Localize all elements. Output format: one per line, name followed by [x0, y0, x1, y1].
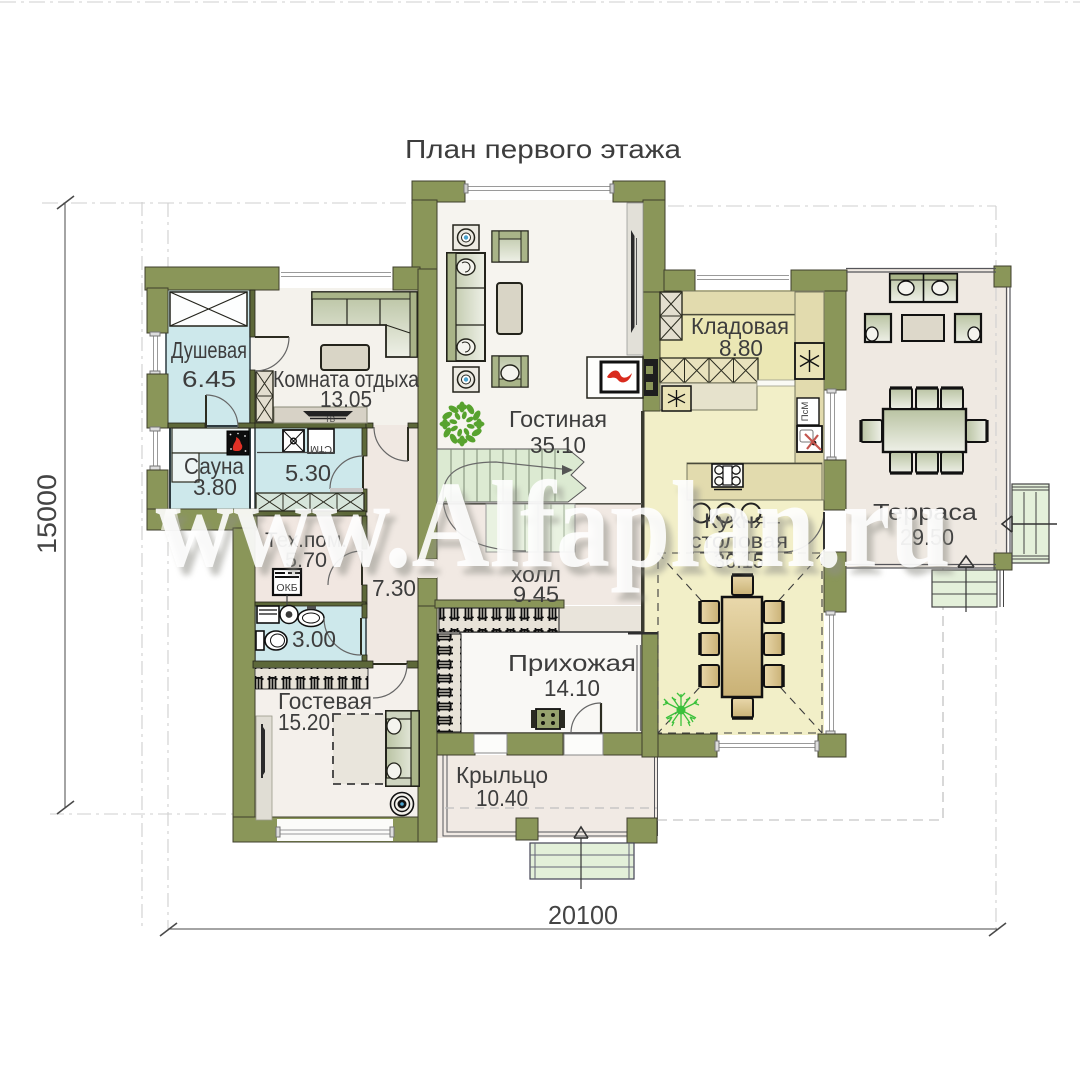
- svg-text:20100: 20100: [548, 900, 618, 930]
- svg-text:35.10: 35.10: [530, 432, 586, 458]
- svg-text:15000: 15000: [32, 474, 62, 554]
- svg-text:ПсМ: ПсМ: [800, 402, 811, 422]
- svg-text:15.20: 15.20: [278, 709, 330, 735]
- svg-text:8.80: 8.80: [719, 335, 763, 361]
- svg-text:6.45: 6.45: [182, 366, 236, 392]
- svg-text:13.05: 13.05: [320, 386, 372, 412]
- svg-text:ТВ: ТВ: [325, 415, 335, 424]
- svg-text:www.Alfaplan.ru: www.Alfaplan.ru: [156, 456, 951, 593]
- svg-text:Гостиная: Гостиная: [509, 406, 607, 432]
- svg-text:14.10: 14.10: [544, 675, 600, 701]
- svg-text:План первого этажа: План первого этажа: [405, 134, 682, 164]
- svg-text:3.00: 3.00: [292, 626, 336, 652]
- svg-text:Прихожая: Прихожая: [508, 650, 636, 676]
- svg-text:10.40: 10.40: [476, 785, 528, 811]
- svg-text:СтМ: СтМ: [310, 443, 332, 455]
- svg-text:Душевая: Душевая: [171, 337, 247, 363]
